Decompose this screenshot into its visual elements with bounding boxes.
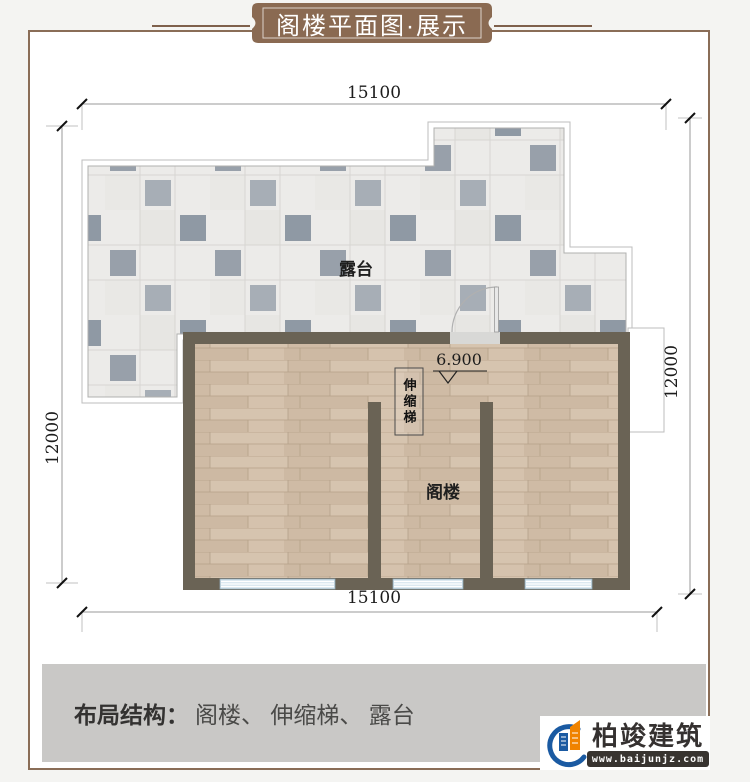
dimension-top-label: 15100 <box>314 83 434 103</box>
dimension-left-label: 12000 <box>43 398 65 478</box>
interior-wall-left <box>368 402 381 578</box>
attic-room-label: 阁楼 <box>413 478 473 503</box>
terrace-room-label: 露台 <box>326 255 386 280</box>
elevation-value-label: 6.900 <box>428 350 490 369</box>
page: 阁楼平面图·展示 15100 15100 12000 12000 露台 阁楼 伸… <box>0 0 750 782</box>
banner-title: 阁楼平面图·展示 <box>252 2 492 44</box>
footer-value: 阁楼、 伸缩梯、 露台 <box>195 696 415 730</box>
dimension-bottom-label: 15100 <box>314 588 434 608</box>
interior-wall-right <box>480 402 493 578</box>
ladder-label: 伸缩梯 <box>396 371 422 433</box>
dimension-right-label: 12000 <box>662 332 684 412</box>
right-extension-outline <box>628 328 664 432</box>
footer-layout-text: 布局结构： 阁楼、 伸缩梯、 露台 <box>74 664 415 762</box>
logo-website: www.baijunjz.com <box>587 752 709 767</box>
footer-label: 布局结构： <box>74 696 189 730</box>
logo-company-name: 柏竣建筑 <box>585 716 711 752</box>
